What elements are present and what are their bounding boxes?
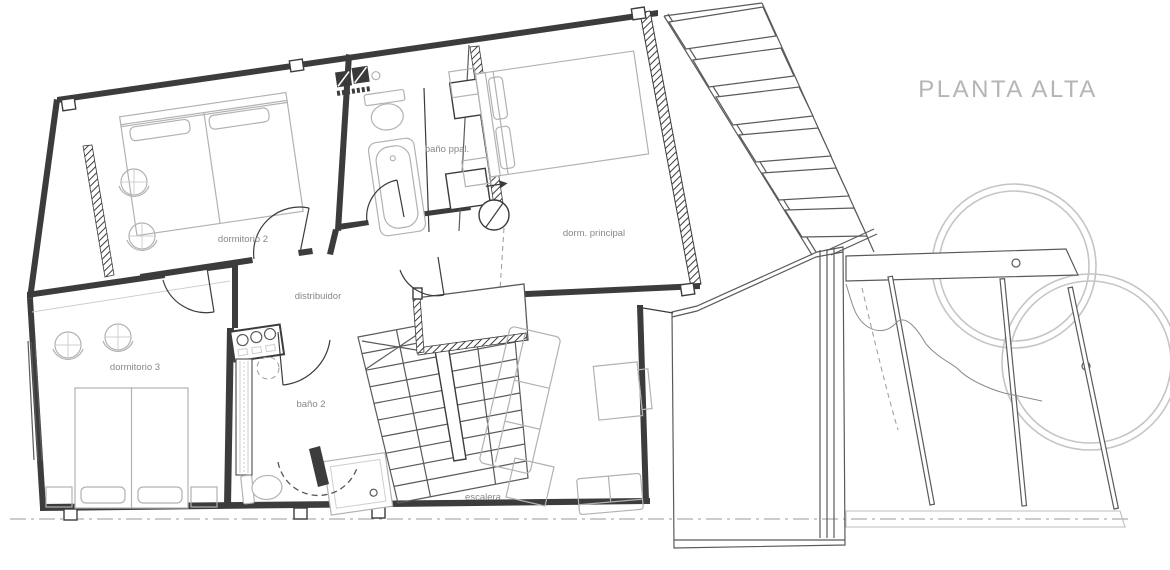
column (680, 283, 694, 296)
plan-linework (475, 51, 648, 177)
column (631, 7, 645, 20)
terrace (637, 247, 845, 548)
sitting-area-right-wall (637, 305, 649, 502)
strut-1 (888, 276, 934, 505)
wall-connector (327, 229, 339, 255)
room-label-bano-ppal: baño ppal. (425, 144, 469, 155)
pergola-slats (664, 3, 877, 255)
room-label-bano-2: baño 2 (296, 399, 325, 410)
plan-linework (236, 359, 252, 475)
left-upper-wall (27, 99, 60, 299)
column-round (479, 200, 509, 230)
strut-dashed-line (862, 288, 898, 430)
garden-context (846, 184, 1170, 527)
room-bano-2 (230, 325, 392, 515)
bano2-divider-stub (232, 264, 238, 328)
room-label-distribuidor: distribuidor (295, 291, 341, 302)
dorm3-bano2-divider (224, 328, 234, 506)
column (61, 98, 75, 111)
plan-linework (593, 362, 642, 420)
room-label-dormitorio-2: dormitorio 2 (218, 234, 268, 245)
slat (739, 128, 831, 162)
chair (103, 324, 133, 351)
plan-linework (370, 102, 405, 132)
dormppal-bottom-wall (505, 283, 700, 298)
shower (324, 453, 393, 515)
plan-linework (424, 88, 429, 232)
toilet (364, 89, 409, 132)
plan-linework (643, 308, 673, 313)
plan-linework (672, 247, 845, 548)
column (289, 59, 303, 72)
room-label-dorm-principal: dorm. principal (563, 228, 625, 239)
strut-2 (1000, 279, 1027, 506)
chair (53, 332, 83, 359)
bed-double (75, 388, 188, 508)
landing-post (413, 288, 422, 299)
plan-linework (608, 476, 610, 502)
slat (785, 208, 867, 237)
plan-linework (371, 71, 380, 80)
plan-linework (251, 474, 283, 501)
bathtub (367, 137, 426, 237)
room-dormitorio-2 (119, 93, 303, 251)
slat (693, 48, 794, 87)
tree-circle-2-inner (1009, 281, 1170, 443)
walkway-beam (846, 249, 1078, 281)
door-bano-2 (278, 332, 330, 385)
couch (577, 473, 644, 514)
floor-plan-page: dormitorio 2 baño ppal. dorm. principal … (0, 0, 1170, 570)
slat (716, 87, 813, 125)
left-lower-wall (27, 298, 46, 508)
plan-linework (397, 330, 431, 497)
room-dormitorio-3 (32, 281, 230, 508)
plan-linework (367, 137, 426, 237)
plan-linework (324, 453, 393, 515)
bath-bottom-wall-a (338, 220, 369, 230)
plan-linework (364, 89, 405, 106)
sitting-area (479, 326, 653, 515)
floor-plan-drawing: dormitorio 2 baño ppal. dorm. principal … (0, 0, 1170, 570)
shaft (236, 359, 252, 475)
dorm2-left-wall-hatched (83, 145, 114, 277)
toilet (241, 472, 284, 504)
room-label-escalera: escalera (465, 492, 502, 503)
washer-units (334, 64, 382, 93)
plan-linework (499, 179, 508, 188)
room-label-dormitorio-3: dormitorio 3 (110, 362, 160, 373)
column (294, 508, 307, 519)
plan-linework (500, 228, 504, 290)
page-title: PLANTA ALTA (918, 76, 1098, 103)
dashed-circle (257, 357, 279, 379)
ottoman (506, 458, 554, 506)
strut-3 (1068, 287, 1118, 509)
double-washbasin (230, 325, 284, 362)
plan-linework (337, 89, 371, 94)
plan-linework (506, 458, 554, 506)
plan-linework (32, 281, 230, 312)
column (64, 509, 77, 520)
